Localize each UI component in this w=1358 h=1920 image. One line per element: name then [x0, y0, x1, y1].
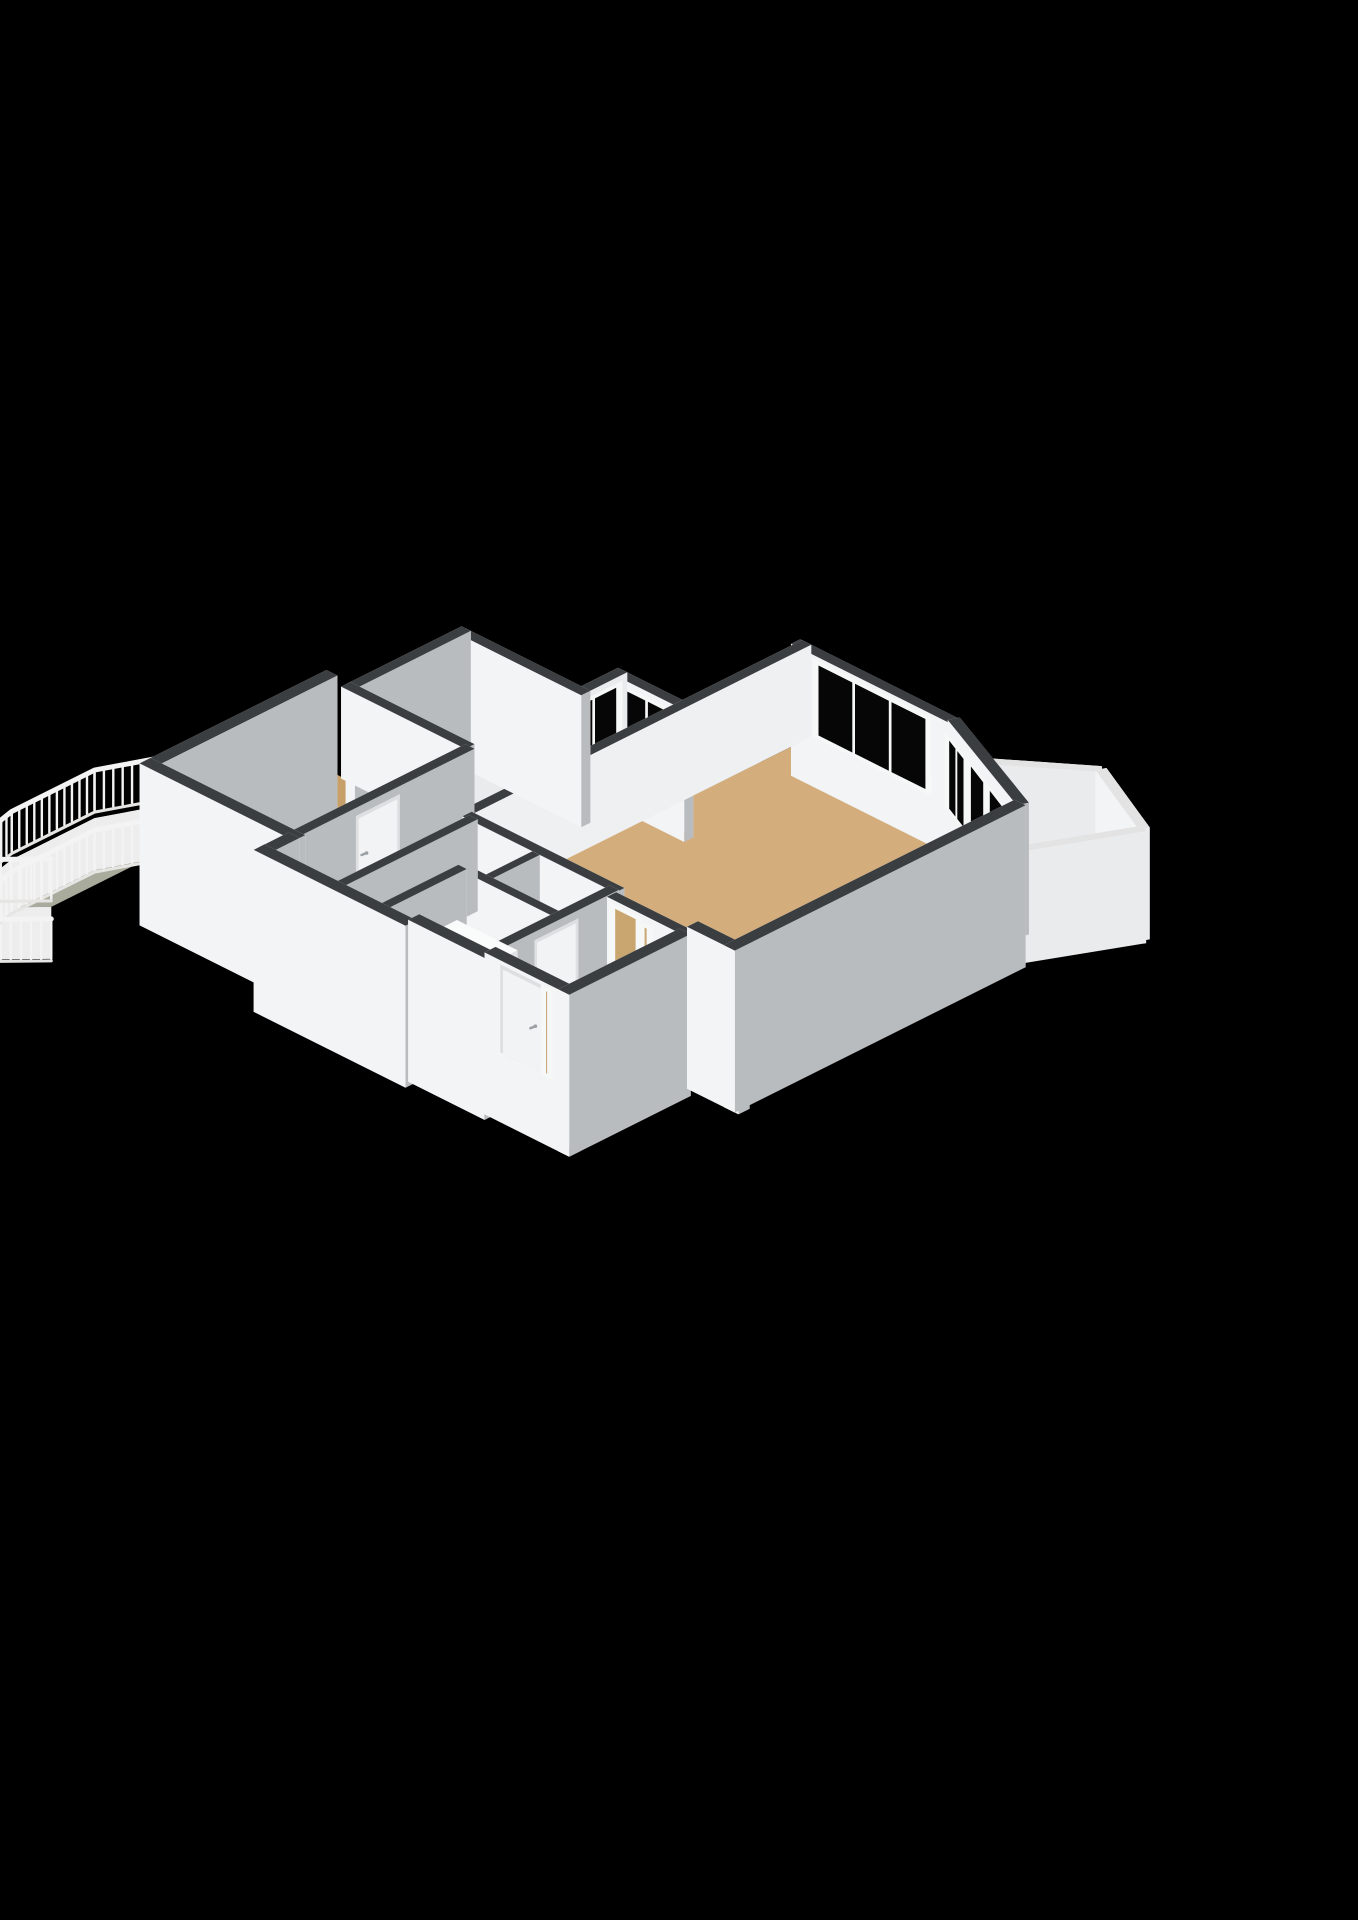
front-door-wood-edge [546, 991, 547, 1073]
wall-face [1026, 831, 1147, 963]
door-handle-icon [365, 851, 369, 855]
floorplan-stage [0, 0, 1358, 1920]
wall-face [724, 945, 735, 1113]
floorplan-3d-render [0, 0, 1358, 1920]
door-handle-icon [534, 1024, 538, 1028]
window-glass [949, 741, 955, 817]
window-glass [957, 751, 963, 827]
wall-face [558, 989, 569, 1157]
wall-face [581, 691, 590, 828]
